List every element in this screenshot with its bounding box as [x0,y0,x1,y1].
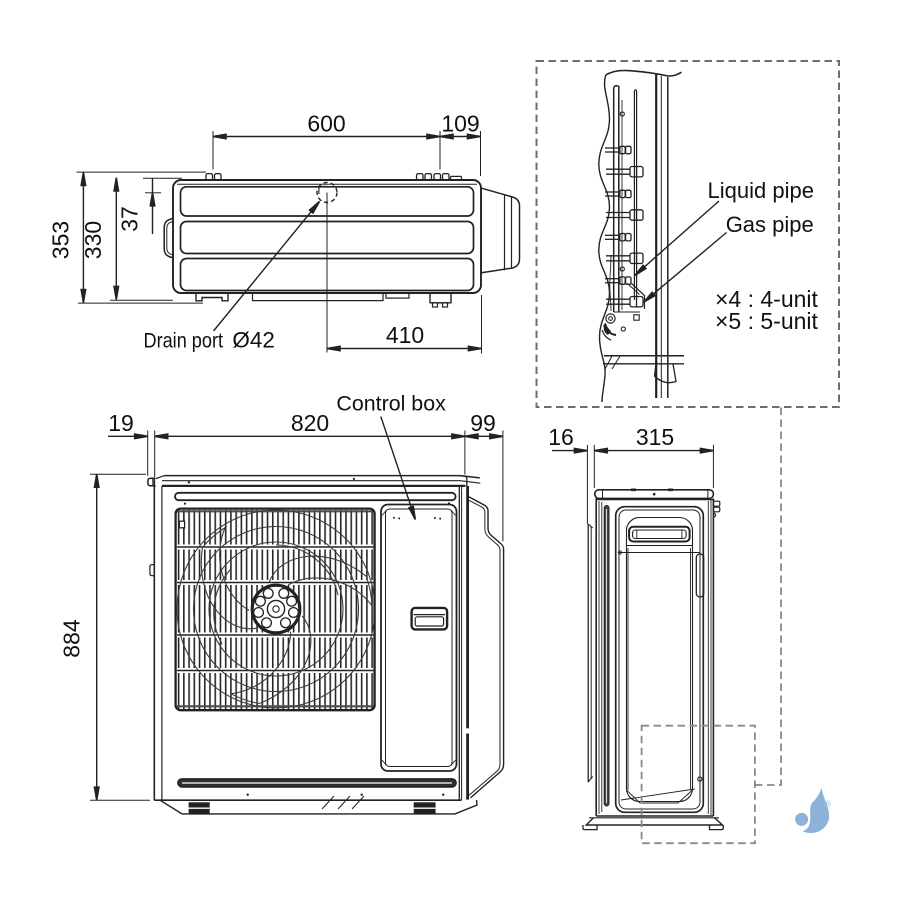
svg-text:884: 884 [59,619,85,658]
svg-text:Control box: Control box [336,393,446,416]
svg-text:®: ® [824,799,831,810]
svg-text:Gas pipe: Gas pipe [726,212,814,237]
svg-text:Drain port: Drain port [144,330,224,353]
svg-text:353: 353 [47,221,73,259]
svg-text:109: 109 [441,111,479,137]
svg-text:×5 : 5-unit: ×5 : 5-unit [715,308,819,334]
svg-text:330: 330 [80,221,106,259]
svg-text:820: 820 [291,410,329,436]
svg-text:19: 19 [108,410,134,436]
svg-text:Liquid pipe: Liquid pipe [708,178,814,203]
svg-text:410: 410 [386,322,424,348]
svg-text:99: 99 [470,410,496,436]
svg-text:600: 600 [307,111,345,137]
svg-text:Ø42: Ø42 [232,328,274,353]
svg-text:37: 37 [117,206,143,232]
svg-text:16: 16 [548,424,574,450]
svg-text:315: 315 [636,424,674,450]
